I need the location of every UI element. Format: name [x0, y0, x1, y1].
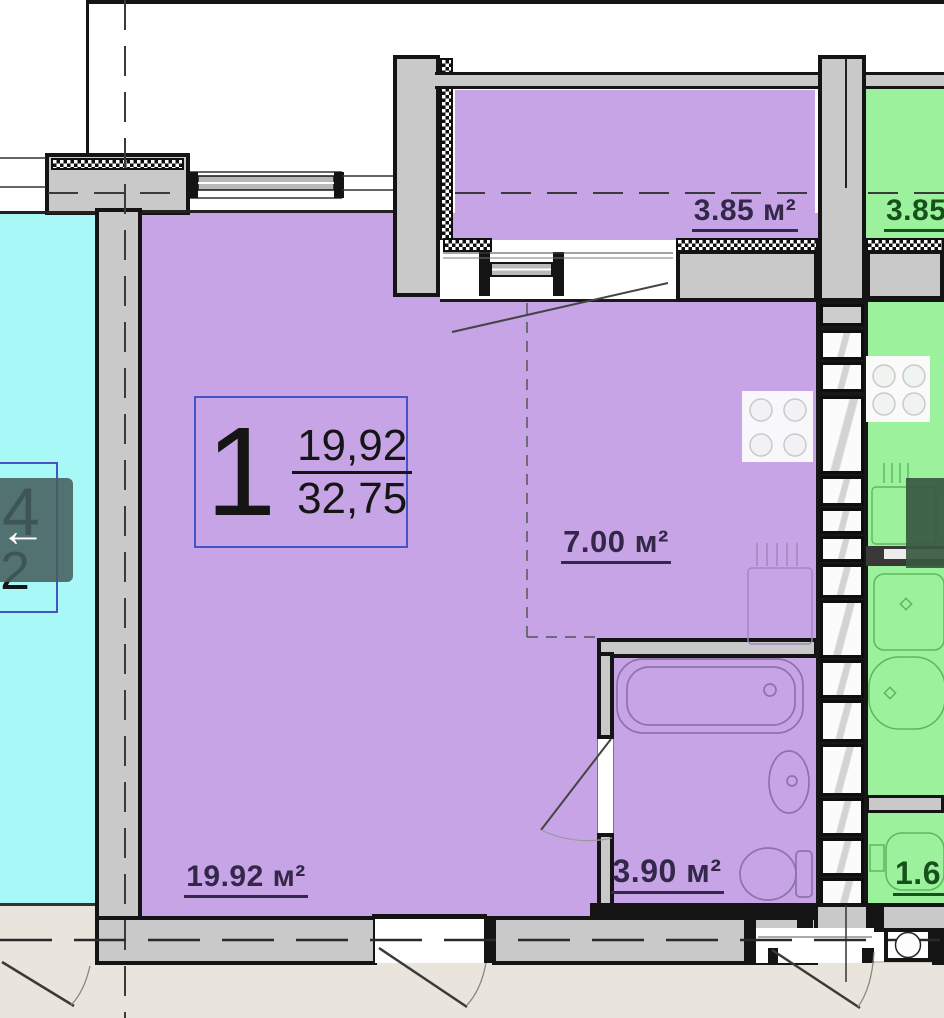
- shaft-block: [820, 798, 864, 836]
- kitchen-area-label: 7.00 м²: [536, 524, 696, 564]
- neighbor-right-area-text: 1.6: [893, 855, 944, 896]
- left-arrow-icon[interactable]: ←: [0, 507, 46, 553]
- apartment-living-area: 19,92: [292, 421, 412, 473]
- entry-jamb-sq-right: [862, 948, 874, 963]
- wall-balcony-column-right: [818, 55, 866, 302]
- shaft-block: [820, 396, 864, 474]
- room-top-edge-door: [440, 299, 676, 302]
- bathroom-door-opening: [597, 739, 614, 833]
- apartment-total-area: 32,75: [292, 474, 412, 523]
- apartment-area-fraction: 19,92 32,75: [292, 421, 412, 523]
- entry-circle-box: [884, 928, 932, 962]
- building-outline-left: [86, 0, 89, 157]
- next-apartment-nav[interactable]: [906, 478, 944, 568]
- shaft-block: [820, 508, 864, 534]
- neighbor-room-green: [866, 302, 944, 930]
- window-glazing-bar: [490, 262, 553, 277]
- shaft-block: [820, 600, 864, 658]
- entry-jamb-sq-left: [768, 948, 778, 963]
- vent-shaft: [816, 302, 868, 930]
- balcony-area-text: 3.85 м²: [692, 194, 798, 232]
- shaft-block: [820, 660, 864, 698]
- exterior-ground: [0, 961, 944, 1018]
- kitchen-area-text: 7.00 м²: [561, 524, 671, 564]
- window-post-right: [553, 252, 564, 296]
- neighbor-right-area-label: 1.6: [893, 855, 944, 896]
- floor-plan: 3.85 м² 3.85 7.00 м² 19.92 м² 3.90 м² 1.…: [0, 0, 944, 1018]
- wall-bathroom-left-upper: [597, 652, 614, 739]
- wall-bottom-left: [95, 916, 377, 965]
- door-opening-bottom-left: [375, 919, 484, 963]
- main-room-purple: [142, 213, 818, 920]
- wall-balcony-column-left: [393, 55, 440, 297]
- shaft-block: [820, 362, 864, 392]
- shaft-block: [820, 304, 864, 326]
- shaft-block: [820, 838, 864, 876]
- room-top-edge-purple: [142, 210, 395, 213]
- bathroom-area-text: 3.90 м²: [611, 853, 724, 894]
- wall-hatch-under-balcony-1: [443, 238, 492, 252]
- bathroom-area-label: 3.90 м²: [600, 853, 734, 894]
- wall-under-balcony-green: [866, 250, 944, 302]
- shaft-block: [820, 744, 864, 796]
- wall-green-partition: [866, 795, 944, 813]
- wall-under-balcony: [676, 250, 818, 302]
- balcony-right-area-label: 3.85: [884, 194, 944, 232]
- living-area-label: 19.92 м²: [176, 860, 316, 898]
- window-post-left: [479, 252, 490, 296]
- living-area-text: 19.92 м²: [184, 860, 308, 898]
- room-top-edge-green: [866, 296, 944, 302]
- apartment-number: 1: [206, 414, 276, 530]
- room-top-edge-cyan: [0, 211, 95, 214]
- entry-wall-end: [932, 928, 944, 965]
- prev-apartment-nav[interactable]: ←: [0, 478, 73, 582]
- building-outline-top: [87, 0, 944, 4]
- wall-bathroom-top: [597, 638, 818, 658]
- room-bottom-edge-cyan: [0, 903, 95, 906]
- shaft-block: [820, 700, 864, 742]
- wall-hatch-pier: [51, 158, 184, 170]
- shaft-block: [820, 476, 864, 506]
- entry-jamb-left: [744, 916, 756, 963]
- exterior-ground-left: [0, 905, 95, 1018]
- balcony-right-area-text: 3.85: [884, 194, 944, 232]
- balcony-parapet: [435, 72, 944, 89]
- wall-left: [95, 208, 142, 965]
- shaft-block: [820, 536, 864, 562]
- apartment-info-card: 1 19,92 32,75: [194, 396, 408, 548]
- shaft-block: [820, 564, 864, 598]
- balcony-area-label: 3.85 м²: [645, 194, 845, 232]
- shaft-block: [820, 330, 864, 360]
